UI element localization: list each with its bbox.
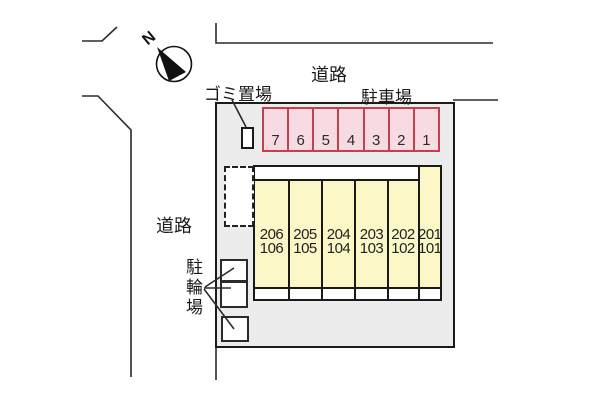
parking-stall: 2 [388,109,413,150]
label-parking-area: 駐車場 [361,83,412,108]
label-garbage-area: ゴミ置場 [204,80,272,105]
bicycle-rack [221,316,249,342]
unit-number-lower: 102 [391,242,415,256]
unit-number-lower: 101 [418,242,442,256]
compass-north-letter: N [139,28,159,48]
dashed-area [224,166,254,227]
building-units: 206106205105204104203103202102201101 [255,181,440,287]
parking-stall: 4 [337,109,362,150]
unit-number-lower: 106 [260,242,284,256]
unit-number-lower: 103 [360,242,384,256]
compass-needle [157,47,186,81]
building-unit: 205105 [288,181,322,287]
site-plan: 7654321 20610620510520410420310320210220… [0,0,600,400]
parking-stall: 7 [264,109,287,150]
building-unit: 203103 [355,181,388,287]
parking-stall-number: 5 [314,132,337,149]
parking-stalls-row: 7654321 [262,107,440,152]
building-entrance-cells [255,287,440,299]
building-unit: 201101 [418,181,442,287]
road-edge-left [82,96,131,377]
label-road-left: 道路 [156,212,192,238]
bicycle-rack [220,281,248,308]
unit-number-lower: 104 [327,242,351,256]
building-unit: 206106 [255,181,288,287]
parking-stall: 5 [312,109,337,150]
parking-stall-number: 6 [289,132,312,149]
parking-stall: 3 [363,109,388,150]
parking-stall: 6 [287,109,312,150]
north-compass-icon: N [139,28,191,81]
parking-stall-number: 3 [365,132,388,149]
building: 206106205105204104203103202102201101 [253,165,442,301]
compass-circle [157,47,192,82]
road-corner-line [82,27,117,41]
building-balcony-strip [255,167,418,181]
building-unit: 204104 [322,181,355,287]
road-edge-top [216,23,493,43]
unit-number-lower: 105 [293,242,317,256]
label-road-top: 道路 [311,61,347,87]
parking-stall-number: 1 [415,132,438,149]
parking-stall-number: 7 [264,132,287,149]
parking-stall: 1 [413,109,438,150]
parking-stall-number: 4 [339,132,362,149]
bicycle-rack [220,259,248,282]
building-unit: 202102 [388,181,418,287]
parking-stall-number: 2 [390,132,413,149]
label-bicycle-area: 駐輪場 [180,258,205,318]
garbage-box [241,127,254,149]
